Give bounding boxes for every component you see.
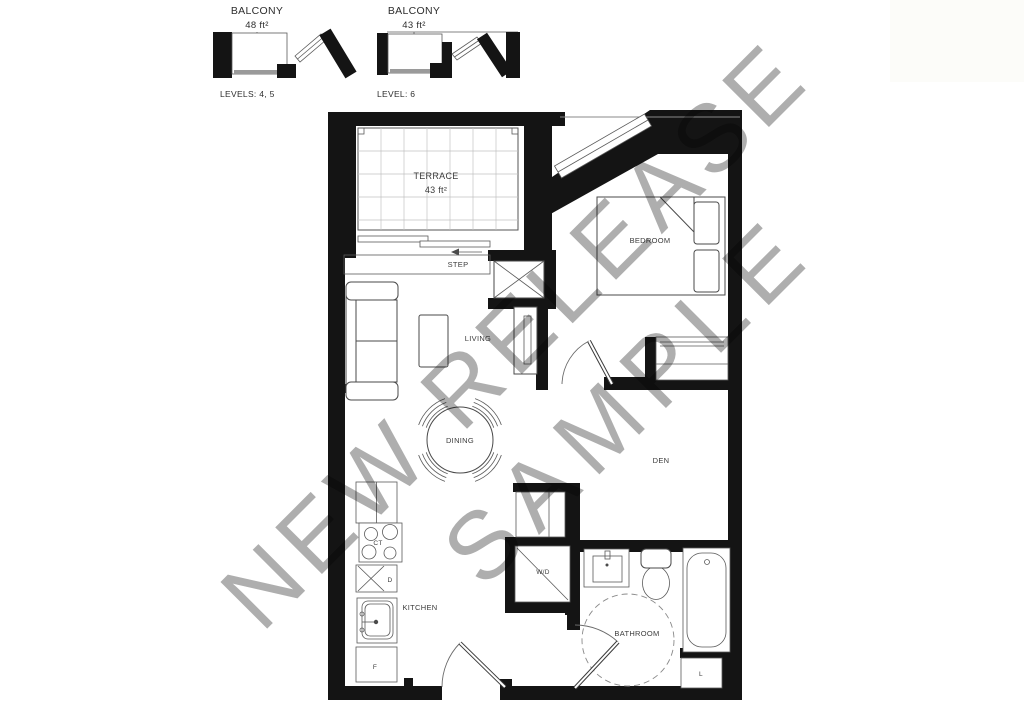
step-label: STEP <box>448 260 469 269</box>
bathtub <box>683 548 730 652</box>
linen-label: L <box>699 671 703 678</box>
terrace-label: TERRACE <box>413 171 458 181</box>
entry-door <box>442 643 505 687</box>
balcony1-area: 48 ft² <box>245 20 268 31</box>
washer-dryer-label: W/D <box>536 569 550 576</box>
scan-artifact <box>890 0 1024 82</box>
den-label: DEN <box>653 456 670 465</box>
fridge-label: F <box>373 664 377 671</box>
turning-radius-circle <box>582 594 674 686</box>
bathroom-door <box>575 625 618 688</box>
balcony2-area: 43 ft² <box>402 20 425 31</box>
balcony1-levels: LEVELS: 4, 5 <box>220 89 275 99</box>
terrace-area: 43 ft² <box>425 185 447 195</box>
terrace-sliding-door <box>358 236 490 247</box>
balcony1-label: BALCONY <box>231 5 283 17</box>
balcony2-label: BALCONY <box>388 5 440 17</box>
balcony-diagram-level-6 <box>377 32 520 78</box>
bathroom-label: BATHROOM <box>614 629 659 638</box>
dishwasher-label: D <box>388 577 393 584</box>
kitchen-sink <box>357 598 397 643</box>
sofa <box>346 282 398 400</box>
floorplan-drawing: BALCONY 48 ft² LEVELS: 4, 5 BALCONY 43 f… <box>0 0 1024 704</box>
step-arrow-icon <box>451 249 482 256</box>
vanity-sink <box>584 549 629 587</box>
bathroom-fixtures <box>582 548 730 688</box>
balcony-diagram-levels-4-5 <box>213 32 351 78</box>
floorplan-page: BALCONY 48 ft² LEVELS: 4, 5 BALCONY 43 f… <box>0 0 1024 704</box>
toilet <box>641 549 671 600</box>
kitchen-label: KITCHEN <box>402 603 437 612</box>
balcony2-levels: LEVEL: 6 <box>377 89 415 99</box>
